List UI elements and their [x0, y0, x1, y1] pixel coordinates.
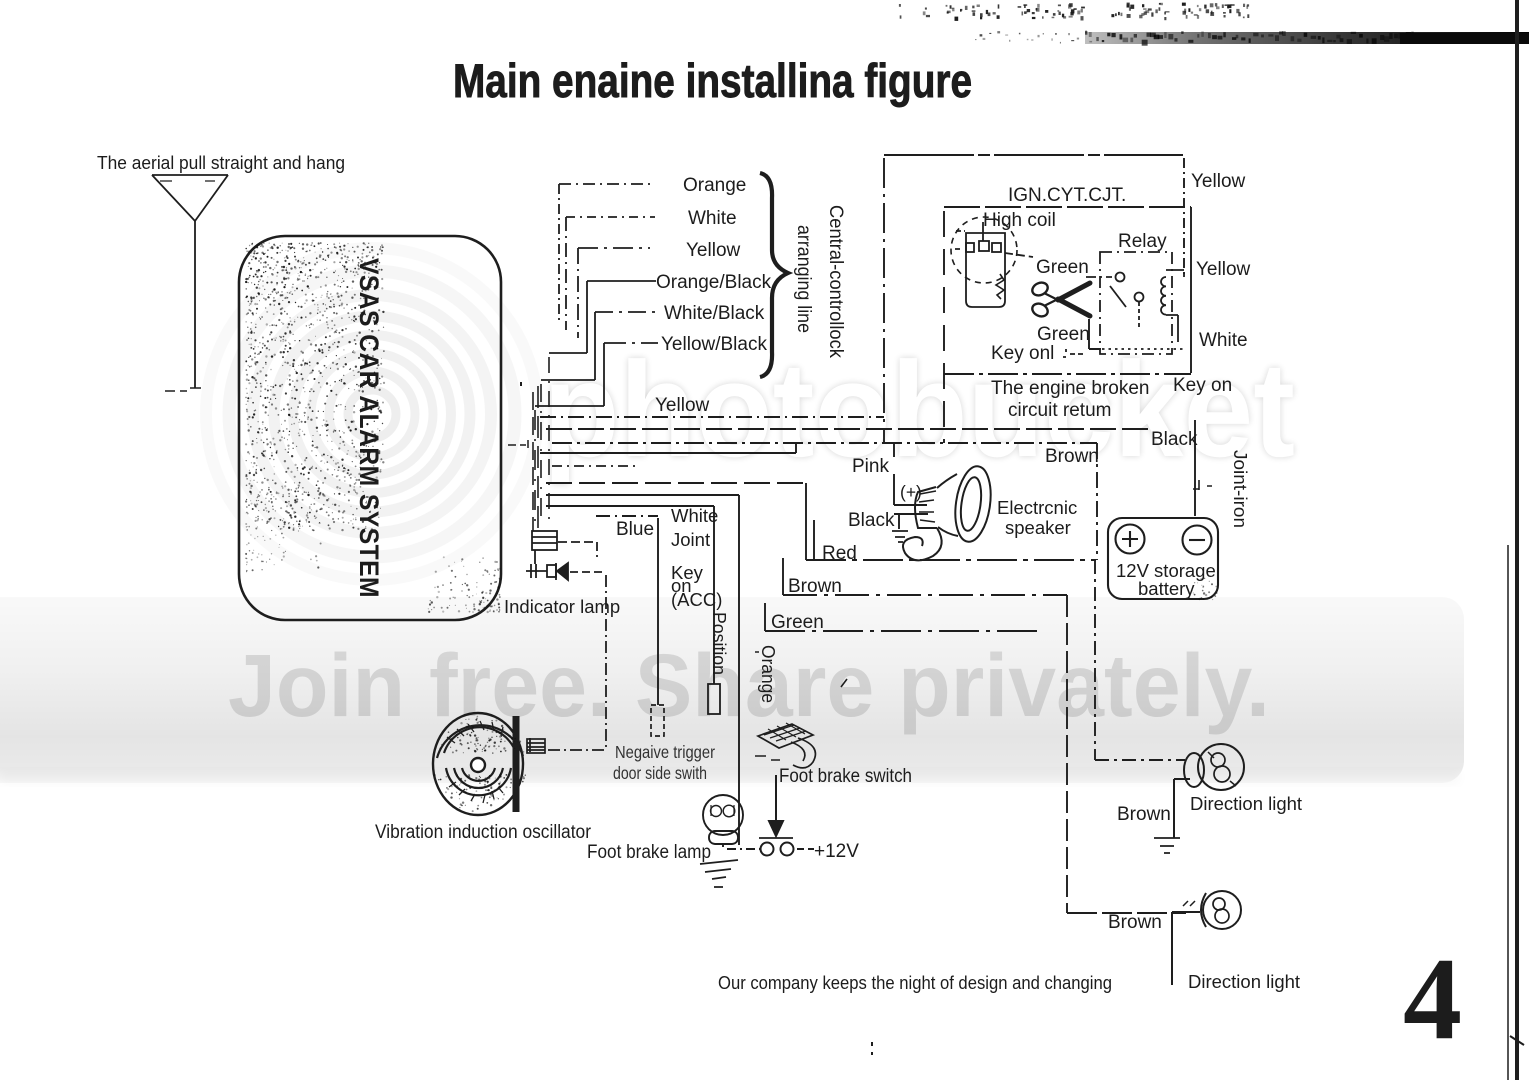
svg-text:Pink: Pink	[852, 456, 889, 477]
svg-text:Black: Black	[848, 510, 895, 531]
svg-text:White/Black: White/Black	[664, 303, 765, 324]
svg-text:Yellow: Yellow	[655, 395, 710, 416]
svg-text:Orange: Orange	[758, 645, 779, 703]
svg-text:arranging line: arranging line	[793, 225, 814, 333]
svg-text:Yellow: Yellow	[1191, 171, 1246, 192]
svg-text:Black: Black	[1151, 429, 1198, 450]
svg-text:Negaive trigger: Negaive trigger	[615, 742, 715, 762]
svg-text:White: White	[688, 208, 737, 229]
svg-text:IGN.CYT.CJT.: IGN.CYT.CJT.	[1008, 185, 1126, 206]
svg-text:Main enaine installina figure: Main enaine installina figure	[453, 54, 972, 107]
svg-text:circuit retum: circuit retum	[1008, 400, 1111, 421]
svg-text:Green: Green	[1036, 257, 1089, 278]
svg-text:battery: battery	[1138, 578, 1195, 599]
svg-text:Red: Red	[822, 543, 857, 564]
svg-text:Blue: Blue	[616, 519, 654, 540]
svg-text:(ACC): (ACC)	[671, 589, 722, 610]
svg-text:Yellow: Yellow	[1196, 259, 1251, 280]
svg-text:The aerial pull straight and h: The aerial pull straight and hang	[97, 152, 345, 173]
svg-text:White: White	[1199, 330, 1248, 351]
svg-text:Brown: Brown	[788, 576, 842, 597]
svg-text:High coil: High coil	[983, 210, 1056, 231]
svg-text:Key on: Key on	[1173, 375, 1232, 396]
svg-text:Brown: Brown	[1117, 804, 1171, 825]
svg-text:Yellow/Black: Yellow/Black	[661, 334, 767, 355]
svg-text:+12V: +12V	[814, 841, 859, 862]
svg-text:Relay: Relay	[1118, 231, 1167, 252]
svg-text:Green: Green	[771, 612, 824, 633]
svg-text:Position: Position	[709, 612, 730, 675]
svg-text:Brown: Brown	[1108, 912, 1162, 933]
svg-text:Join free. Share privately.: Join free. Share privately.	[228, 635, 1270, 735]
svg-text:Foot brake switch: Foot brake switch	[779, 766, 912, 787]
svg-text:4: 4	[1403, 933, 1462, 1064]
svg-text:door side swith: door side swith	[613, 763, 707, 783]
svg-text:Key onl: Key onl	[991, 343, 1054, 364]
svg-text:The engine broken: The engine broken	[991, 378, 1149, 399]
svg-text:Electrcnic: Electrcnic	[997, 497, 1077, 518]
svg-text:Direction light: Direction light	[1188, 971, 1300, 992]
svg-text:Our company keeps the night of: Our company keeps the night of design an…	[718, 972, 1112, 993]
svg-text:Vibration induction oscillator: Vibration induction oscillator	[375, 822, 592, 843]
svg-text:Joint: Joint	[671, 529, 710, 550]
svg-text:Brown: Brown	[1045, 446, 1099, 467]
svg-text:speaker: speaker	[1005, 517, 1071, 538]
svg-text:Direction light: Direction light	[1190, 793, 1302, 814]
svg-text:Orange/Black: Orange/Black	[656, 272, 772, 293]
svg-text:Foot brake lamp: Foot brake lamp	[587, 842, 711, 863]
svg-text:Orange: Orange	[683, 175, 746, 196]
svg-text:Yellow: Yellow	[686, 240, 741, 261]
svg-text:VSAS CAR ALARM SYSTEM: VSAS CAR ALARM SYSTEM	[354, 258, 384, 598]
svg-text:White: White	[671, 505, 718, 526]
svg-text:Central-controllock: Central-controllock	[825, 205, 846, 358]
svg-text:Indicator lamp: Indicator lamp	[504, 596, 620, 617]
svg-text:Green: Green	[1037, 324, 1090, 345]
svg-text:Joint-iron: Joint-iron	[1230, 450, 1251, 528]
